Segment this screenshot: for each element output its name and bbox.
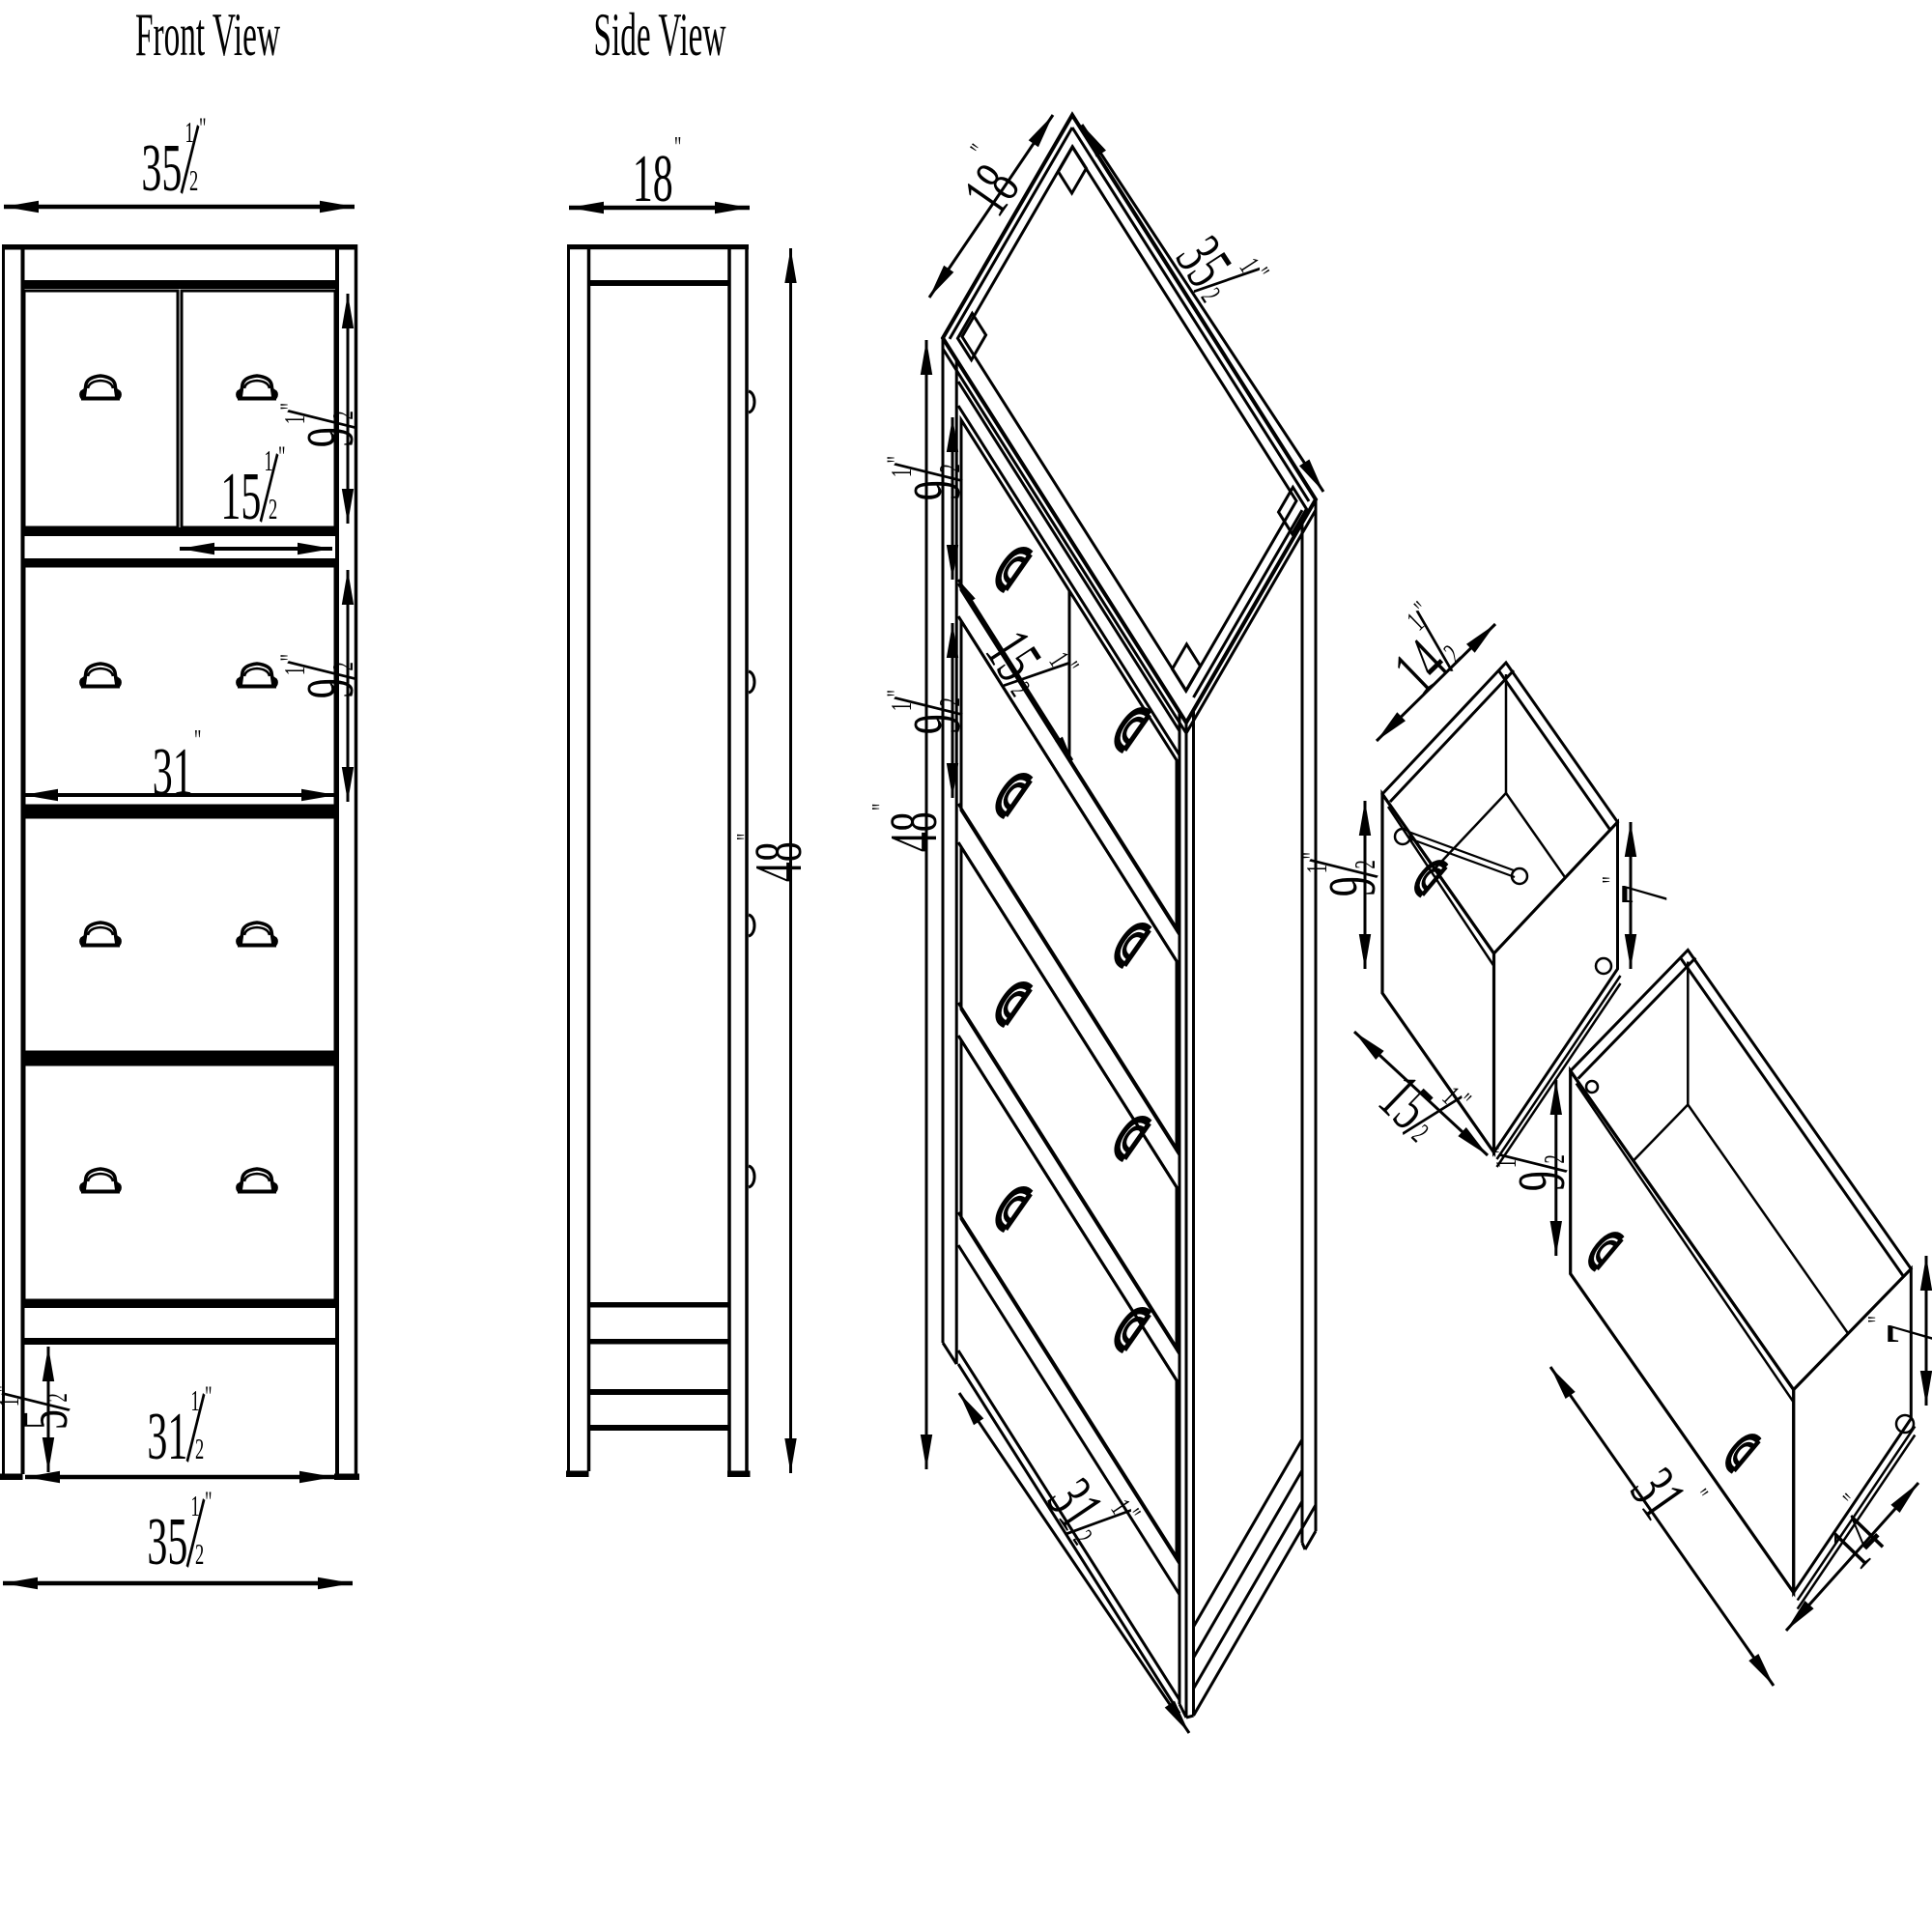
svg-text:9: 9	[901, 480, 975, 500]
svg-text:": "	[1861, 1316, 1894, 1323]
svg-text:": "	[1596, 876, 1629, 884]
svg-text:": "	[274, 403, 307, 411]
svg-text:": "	[730, 834, 763, 841]
svg-text:": "	[0, 1385, 21, 1393]
svg-text:5: 5	[9, 1409, 82, 1430]
svg-text:7: 7	[1608, 885, 1682, 905]
svg-text:": "	[881, 456, 914, 464]
svg-text:": "	[866, 804, 898, 811]
svg-text:Side View: Side View	[594, 0, 726, 69]
svg-text:48: 48	[878, 811, 952, 852]
svg-text:15: 15	[220, 461, 261, 534]
svg-text:2: 2	[269, 494, 277, 526]
svg-text:": "	[199, 112, 207, 145]
svg-text:9: 9	[295, 427, 368, 447]
svg-text:9: 9	[295, 678, 368, 698]
svg-text:2: 2	[189, 165, 198, 198]
svg-text:9: 9	[1317, 876, 1390, 896]
svg-text:": "	[881, 690, 914, 697]
svg-text:2: 2	[42, 1393, 74, 1402]
svg-text:": "	[1296, 852, 1329, 860]
svg-text:2: 2	[1539, 1154, 1572, 1163]
svg-text:": "	[674, 130, 682, 163]
svg-text:18: 18	[633, 143, 673, 216]
svg-text:": "	[274, 654, 307, 662]
svg-text:2: 2	[934, 464, 967, 472]
svg-text:35: 35	[141, 132, 182, 206]
svg-text:2: 2	[327, 411, 360, 419]
svg-text:31: 31	[147, 1401, 187, 1474]
svg-text:2: 2	[195, 1539, 204, 1572]
svg-text:9: 9	[1506, 1171, 1579, 1191]
svg-text:": "	[194, 724, 202, 756]
svg-text:14: 14	[1817, 1502, 1898, 1582]
svg-text:2: 2	[327, 662, 360, 670]
svg-text:": "	[205, 1380, 213, 1413]
svg-text:31: 31	[153, 736, 193, 810]
svg-text:": "	[1486, 1147, 1519, 1154]
svg-text:2: 2	[195, 1434, 204, 1466]
svg-text:35: 35	[147, 1506, 187, 1579]
svg-text:7: 7	[1874, 1324, 1932, 1345]
svg-text:2: 2	[934, 697, 967, 706]
svg-text:": "	[278, 440, 286, 473]
svg-text:9: 9	[901, 714, 975, 734]
svg-text:2: 2	[1350, 860, 1382, 868]
svg-text:Front View: Front View	[135, 0, 280, 69]
svg-text:": "	[205, 1486, 213, 1519]
svg-text:48: 48	[743, 841, 816, 882]
